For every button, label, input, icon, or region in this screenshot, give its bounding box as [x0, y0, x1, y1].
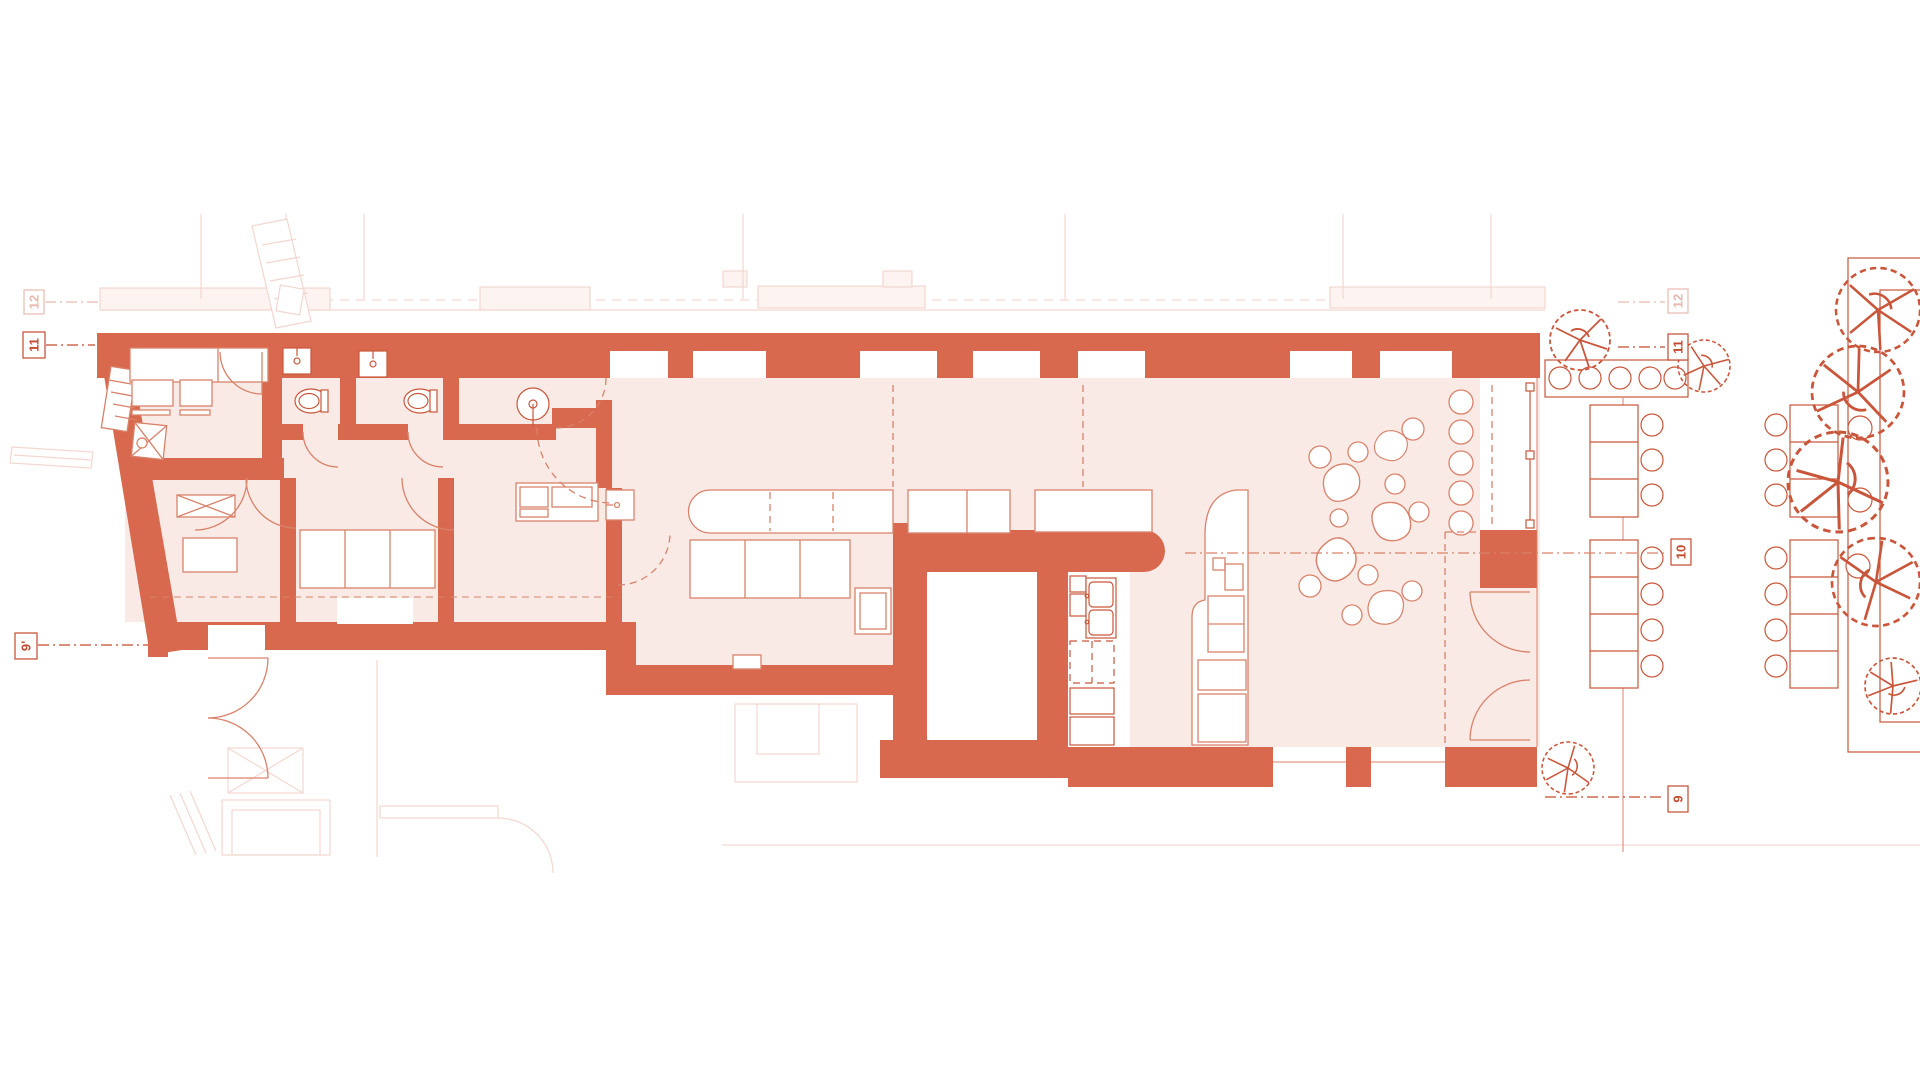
svg-text:12: 12	[1671, 294, 1686, 308]
chair-icon	[1549, 367, 1571, 389]
tree-icon	[1827, 259, 1920, 362]
grid-marker-11-right: 11	[1668, 334, 1688, 360]
shower-icon	[131, 422, 166, 459]
window-opening	[1380, 351, 1452, 378]
grid-marker-12-right: 12	[1668, 289, 1688, 313]
bottom-right-wall	[1068, 747, 1273, 787]
grid-marker-11-left: 11	[23, 332, 45, 358]
kitchen-dividing-wall	[893, 530, 1165, 572]
svg-text:11: 11	[27, 338, 42, 352]
svg-text:9: 9	[1671, 795, 1686, 802]
svg-text:9': 9'	[19, 641, 34, 651]
door-opening	[208, 625, 265, 650]
bench-row	[1545, 360, 1688, 397]
kitchen-line	[1068, 572, 1130, 747]
window-opening	[610, 351, 668, 378]
toilet-icon	[295, 389, 328, 413]
chair-icon	[1579, 367, 1601, 389]
toilet-icon	[404, 389, 437, 413]
entrance-pier	[1480, 530, 1537, 588]
svg-text:12: 12	[27, 295, 42, 309]
grid-marker-9-right: 9	[1668, 786, 1688, 812]
terrace-table-group	[1590, 405, 1663, 517]
window-opening	[1290, 351, 1352, 378]
window-opening	[1273, 747, 1346, 787]
window-opening	[337, 598, 413, 624]
chair-icon	[1639, 367, 1661, 389]
window-opening	[860, 351, 937, 378]
terrace-table-group	[1765, 540, 1838, 688]
floor-plan-sheet: 12 11 9' 12 11 10 9	[0, 0, 1920, 1066]
tree-icon	[1825, 531, 1920, 633]
duct-shaft	[177, 495, 235, 517]
grid-marker-12-left: 12	[24, 290, 44, 314]
floor-plan-drawing: 12 11 9' 12 11 10 9	[0, 0, 1920, 1066]
window-opening	[1371, 747, 1445, 787]
chair-icon	[1609, 367, 1631, 389]
window-opening	[973, 351, 1040, 378]
svg-text:10: 10	[1674, 545, 1689, 559]
double-sink-icon	[1085, 578, 1116, 638]
context-awning	[10, 447, 93, 468]
chair-icon	[1664, 367, 1686, 389]
terrace-table-group	[1765, 405, 1838, 517]
svg-text:11: 11	[1671, 340, 1686, 354]
terrace-table-group	[1590, 540, 1663, 688]
grid-marker-10-right: 10	[1671, 539, 1691, 565]
terrace	[1545, 360, 1838, 852]
tree-icon	[1538, 738, 1598, 798]
tree-icon	[1854, 647, 1920, 726]
trees	[1538, 259, 1920, 799]
bar-counter	[689, 490, 1153, 533]
wall-pier-9prime	[148, 632, 168, 657]
context-stair-ramp	[252, 219, 311, 328]
window-opening	[1078, 351, 1145, 378]
grid-marker-9prime-left: 9'	[15, 633, 37, 659]
window-opening	[693, 351, 766, 378]
